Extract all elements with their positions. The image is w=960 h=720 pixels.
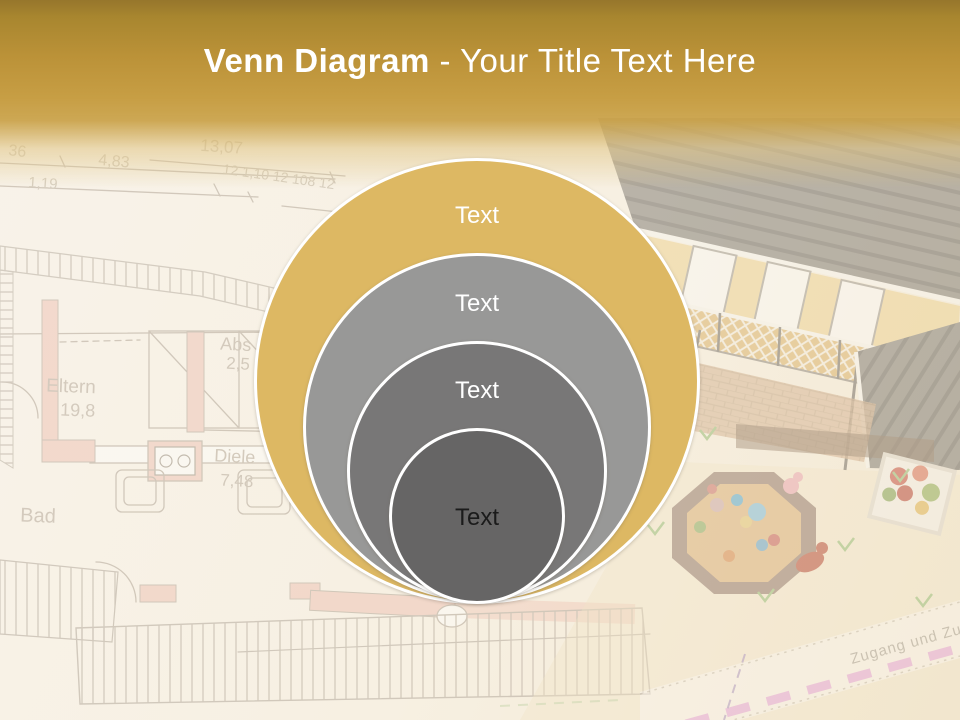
slide: Eltern 19,8 Abs 2,5 Diele 7,48 Bad 36 4,… bbox=[0, 0, 960, 720]
title-placeholder-text: - Your Title Text Here bbox=[440, 42, 757, 79]
room-label-diele-size: 7,48 bbox=[220, 470, 254, 491]
venn-ring-inner-label: Text bbox=[417, 504, 537, 532]
room-label-bad-name: Bad bbox=[20, 505, 56, 528]
room-label-eltern-size: 19,8 bbox=[60, 400, 96, 421]
title-keyword: Venn Diagram bbox=[204, 42, 430, 79]
venn-ring-third-label: Text bbox=[417, 377, 537, 405]
room-label-abs-size: 2,5 bbox=[226, 354, 251, 374]
slide-title: Venn Diagram - Your Title Text Here bbox=[0, 40, 960, 82]
room-label-diele-name: Diele bbox=[214, 445, 256, 467]
venn-ring-outer-label: Text bbox=[417, 202, 537, 230]
room-label-abs-name: Abs bbox=[220, 333, 252, 355]
venn-ring-second-label: Text bbox=[417, 290, 537, 318]
room-label-eltern-name: Eltern bbox=[46, 376, 96, 399]
